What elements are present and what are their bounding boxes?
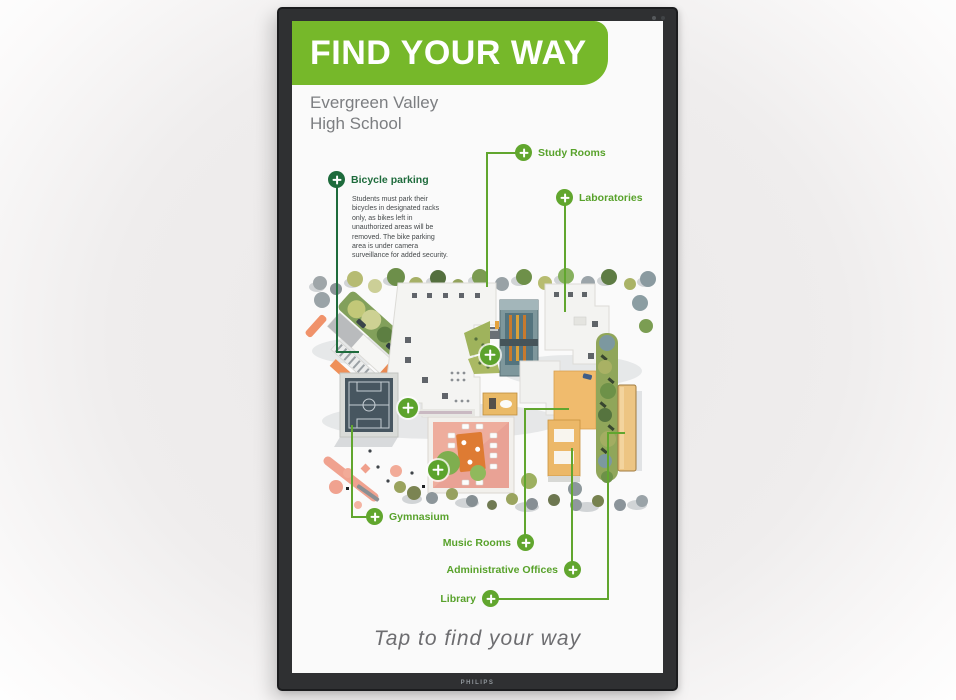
plus-icon[interactable] bbox=[482, 590, 499, 607]
music-building bbox=[548, 420, 580, 482]
basketball-court bbox=[334, 373, 398, 447]
wayfinding-screen[interactable]: FIND YOUR WAY Evergreen Valley High Scho… bbox=[292, 21, 663, 673]
yellow-pavilion bbox=[483, 393, 517, 415]
location-music-rooms[interactable]: Music Rooms bbox=[443, 534, 534, 551]
location-label: Bicycle parking bbox=[351, 174, 429, 186]
plus-icon[interactable] bbox=[517, 534, 534, 551]
location-admin-offices[interactable]: Administrative Offices bbox=[447, 561, 581, 578]
location-study-rooms[interactable]: Study Rooms bbox=[515, 144, 606, 161]
plus-icon[interactable] bbox=[556, 189, 573, 206]
light-sensor-dot bbox=[652, 16, 656, 20]
location-library[interactable]: Library bbox=[440, 590, 499, 607]
philips-logo: PHILIPS bbox=[279, 680, 676, 686]
ir-sensor-dot bbox=[661, 16, 665, 20]
library-building bbox=[618, 385, 642, 471]
location-description: Students must park their bicycles in des… bbox=[352, 195, 450, 261]
signage-display: PHILIPS bbox=[277, 7, 678, 691]
location-bicycle-parking[interactable]: Bicycle parking bbox=[328, 171, 429, 188]
plus-icon[interactable] bbox=[564, 561, 581, 578]
location-laboratories[interactable]: Laboratories bbox=[556, 189, 643, 206]
map-marker-plus-icon[interactable] bbox=[480, 345, 500, 365]
plus-icon[interactable] bbox=[515, 144, 532, 161]
plus-icon[interactable] bbox=[366, 508, 383, 525]
map-marker-plus-icon[interactable] bbox=[428, 460, 448, 480]
location-label: Laboratories bbox=[579, 192, 643, 204]
location-label: Administrative Offices bbox=[447, 564, 558, 576]
map-marker-plus-icon[interactable] bbox=[398, 398, 418, 418]
path-accent bbox=[304, 314, 327, 339]
plus-icon[interactable] bbox=[328, 171, 345, 188]
location-gymnasium[interactable]: Gymnasium bbox=[366, 508, 449, 525]
location-label: Library bbox=[440, 593, 476, 605]
location-label: Music Rooms bbox=[443, 537, 511, 549]
location-label: Study Rooms bbox=[538, 147, 606, 159]
location-label: Gymnasium bbox=[389, 511, 449, 523]
